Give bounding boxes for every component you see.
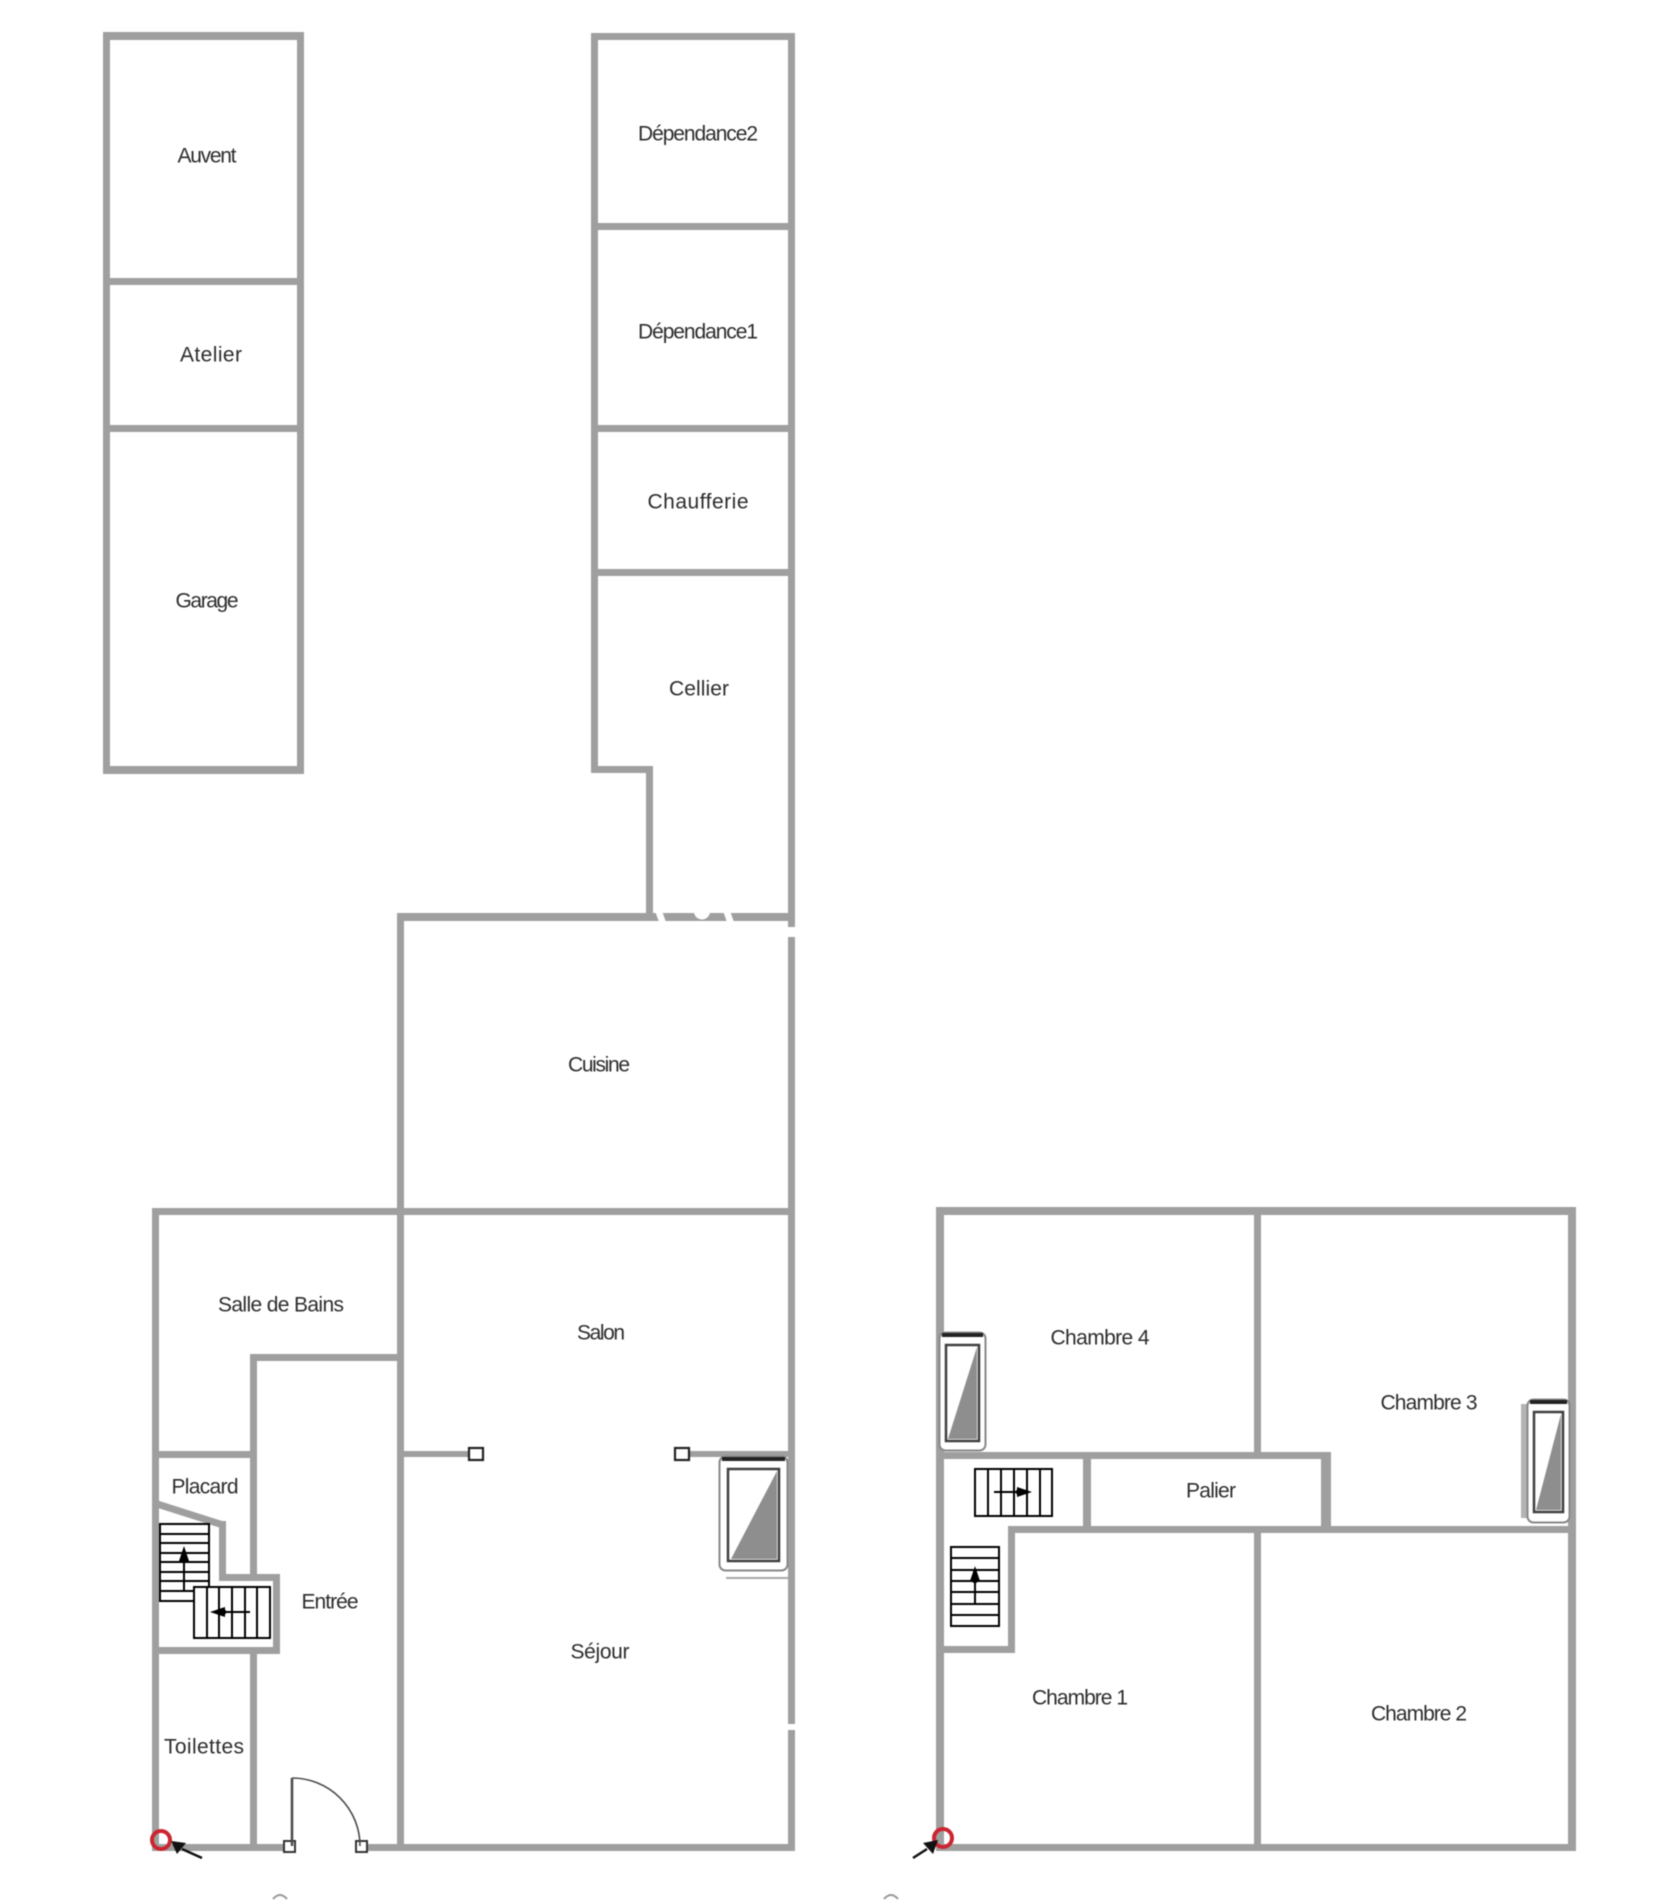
svg-text:Chambre 4: Chambre 4 bbox=[1051, 1327, 1150, 1350]
svg-text:Salon: Salon bbox=[577, 1322, 625, 1345]
svg-text:Atelier: Atelier bbox=[180, 344, 242, 367]
svg-text:Palier: Palier bbox=[1186, 1480, 1236, 1503]
svg-text:Salle de Bains: Salle de Bains bbox=[218, 1294, 344, 1317]
svg-text:Chambre 2: Chambre 2 bbox=[1371, 1703, 1467, 1726]
svg-text:Chaufferie: Chaufferie bbox=[648, 491, 749, 514]
svg-text:Placard: Placard bbox=[172, 1476, 239, 1499]
svg-text:Cuisine: Cuisine bbox=[568, 1054, 630, 1077]
svg-text:Dépendance1: Dépendance1 bbox=[638, 321, 758, 344]
svg-text:Garage: Garage bbox=[176, 590, 239, 613]
svg-text:Chambre 1: Chambre 1 bbox=[1032, 1687, 1128, 1710]
svg-text:Séjour: Séjour bbox=[571, 1641, 630, 1664]
svg-text:Cellier: Cellier bbox=[669, 678, 729, 701]
svg-text:Entrée: Entrée bbox=[302, 1591, 359, 1614]
svg-text:Toilettes: Toilettes bbox=[164, 1736, 244, 1759]
svg-text:Auvent: Auvent bbox=[178, 145, 237, 168]
svg-text:Dépendance2: Dépendance2 bbox=[638, 123, 758, 146]
svg-text:Chambre 3: Chambre 3 bbox=[1381, 1392, 1478, 1415]
